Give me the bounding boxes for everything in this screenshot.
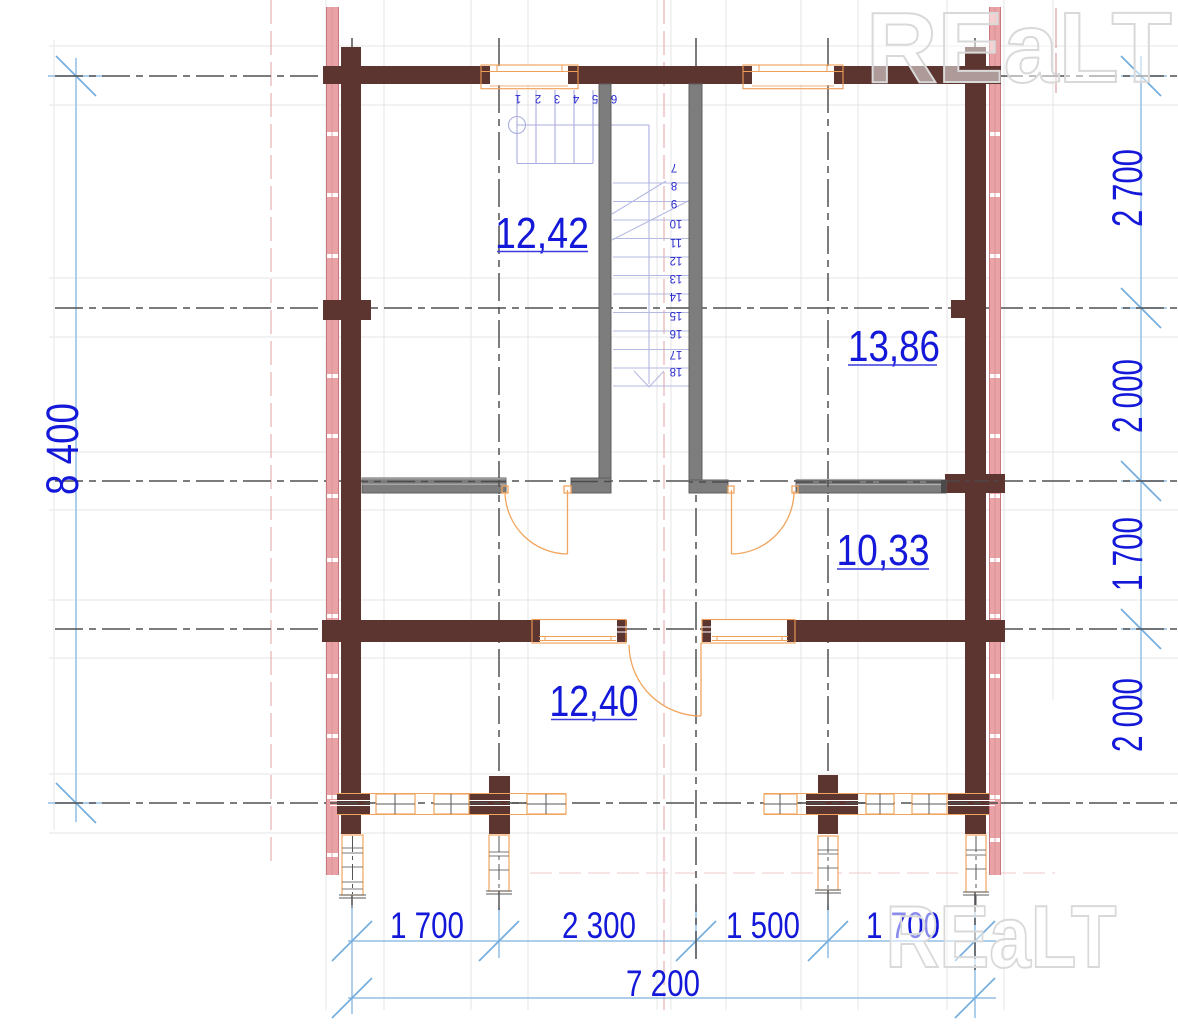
svg-text:15: 15 xyxy=(670,309,683,321)
svg-text:17: 17 xyxy=(670,348,683,360)
svg-text:2: 2 xyxy=(535,92,541,104)
svg-text:9: 9 xyxy=(671,197,677,209)
svg-text:12,42: 12,42 xyxy=(495,209,589,258)
svg-text:2 000: 2 000 xyxy=(1104,359,1152,433)
svg-text:16: 16 xyxy=(670,327,683,339)
svg-text:REaLT: REaLT xyxy=(866,0,1172,104)
svg-text:3: 3 xyxy=(554,92,560,104)
svg-text:1 700: 1 700 xyxy=(390,905,464,946)
svg-text:4: 4 xyxy=(572,92,579,104)
svg-text:8 400: 8 400 xyxy=(37,403,88,495)
svg-text:REaLT: REaLT xyxy=(886,887,1117,986)
svg-text:7: 7 xyxy=(671,161,677,173)
svg-text:13,86: 13,86 xyxy=(848,322,940,371)
svg-text:7 200: 7 200 xyxy=(626,963,700,1004)
svg-text:5: 5 xyxy=(592,92,598,104)
svg-text:11: 11 xyxy=(670,236,682,248)
svg-text:2 300: 2 300 xyxy=(562,905,636,946)
svg-text:2 000: 2 000 xyxy=(1104,678,1152,752)
svg-text:8: 8 xyxy=(671,179,677,191)
svg-text:12: 12 xyxy=(670,254,683,266)
svg-text:2 700: 2 700 xyxy=(1104,149,1152,227)
svg-text:1 500: 1 500 xyxy=(726,905,800,946)
svg-text:10,33: 10,33 xyxy=(837,526,930,575)
svg-text:13: 13 xyxy=(670,272,683,284)
svg-text:10: 10 xyxy=(670,217,683,229)
svg-text:1 700: 1 700 xyxy=(1104,517,1152,591)
svg-text:6: 6 xyxy=(611,92,617,104)
svg-text:18: 18 xyxy=(670,365,683,377)
svg-text:12,40: 12,40 xyxy=(550,677,639,726)
svg-text:1: 1 xyxy=(515,92,521,104)
svg-text:14: 14 xyxy=(669,290,682,302)
